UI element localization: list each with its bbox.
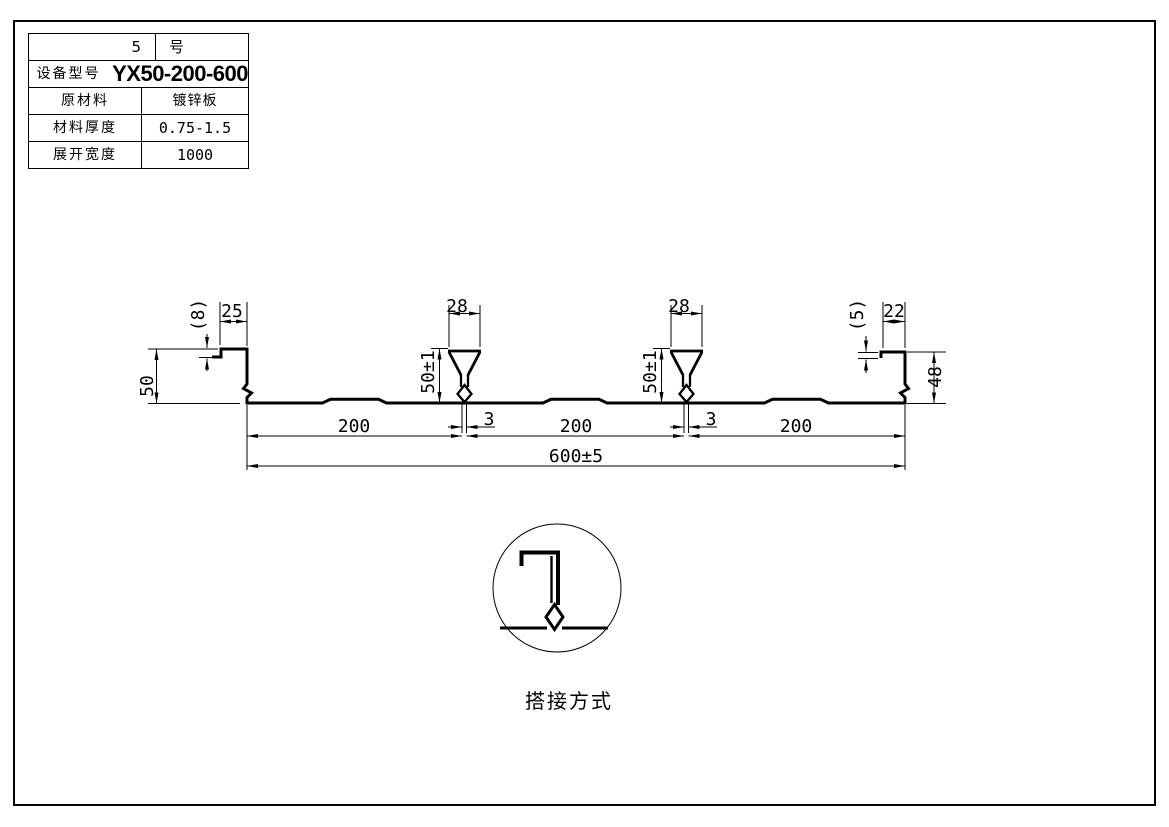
dim-rib2-height: 50±1 bbox=[640, 350, 661, 393]
dim-rib2-stem-width: 3 bbox=[706, 409, 717, 430]
rib-1 bbox=[448, 351, 481, 402]
drawing-sheet: { "page": { "background": "#ffffff", "li… bbox=[0, 0, 1169, 827]
dim-right-edge-height: 48 bbox=[925, 366, 946, 388]
dim-left-edge-height: 50 bbox=[137, 375, 158, 397]
dim-overall-width: 600±5 bbox=[549, 446, 603, 467]
dim-rib1-stem-width: 3 bbox=[484, 409, 495, 430]
dim-rib2-top-width: 28 bbox=[668, 296, 690, 317]
dim-rib1-top-width: 28 bbox=[446, 296, 468, 317]
dim-pitch-3: 200 bbox=[780, 416, 813, 437]
dim-right-top-flange: 22 bbox=[883, 301, 905, 322]
dim-pitch-1: 200 bbox=[338, 416, 371, 437]
rib-2 bbox=[670, 351, 703, 402]
dim-right-lip: (5) bbox=[847, 299, 868, 332]
detail-caption: 搭接方式 bbox=[525, 689, 613, 713]
dim-left-lip: (8) bbox=[188, 299, 209, 332]
dim-left-top-flange: 25 bbox=[221, 301, 243, 322]
dim-pitch-2: 200 bbox=[560, 416, 593, 437]
dimension-lines: 50 (8) 25 28 50±1 3 28 50±1 bbox=[137, 296, 946, 470]
dim-rib1-height: 50±1 bbox=[418, 350, 439, 393]
drawing-canvas: 50 (8) 25 28 50±1 3 28 50±1 bbox=[0, 0, 1169, 827]
lap-joint-detail: 搭接方式 bbox=[493, 524, 621, 713]
panel-profile bbox=[212, 349, 909, 403]
